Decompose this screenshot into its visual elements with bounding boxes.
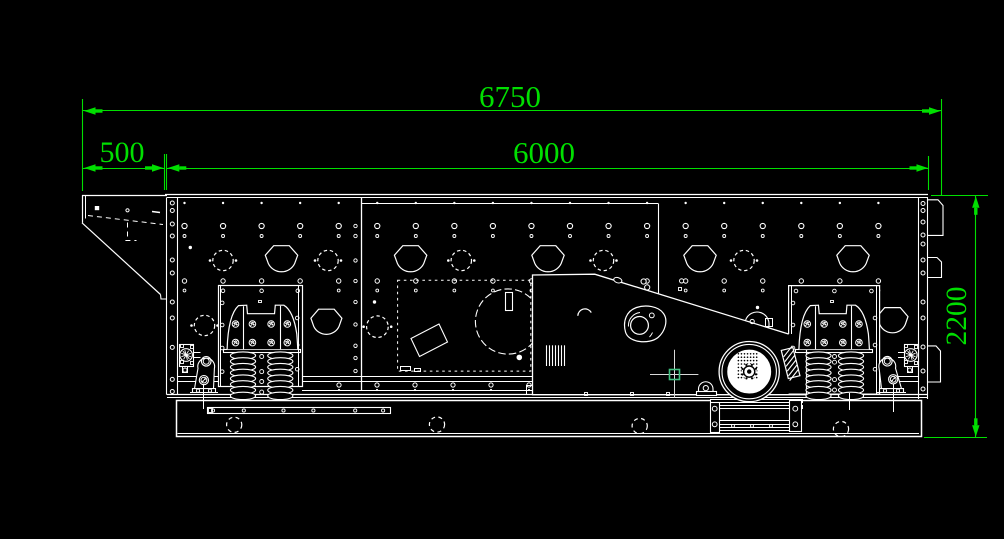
svg-text:2200: 2200 bbox=[941, 287, 973, 346]
svg-text:6750: 6750 bbox=[479, 79, 541, 114]
svg-text:6000: 6000 bbox=[513, 135, 575, 170]
svg-text:500: 500 bbox=[100, 136, 145, 169]
